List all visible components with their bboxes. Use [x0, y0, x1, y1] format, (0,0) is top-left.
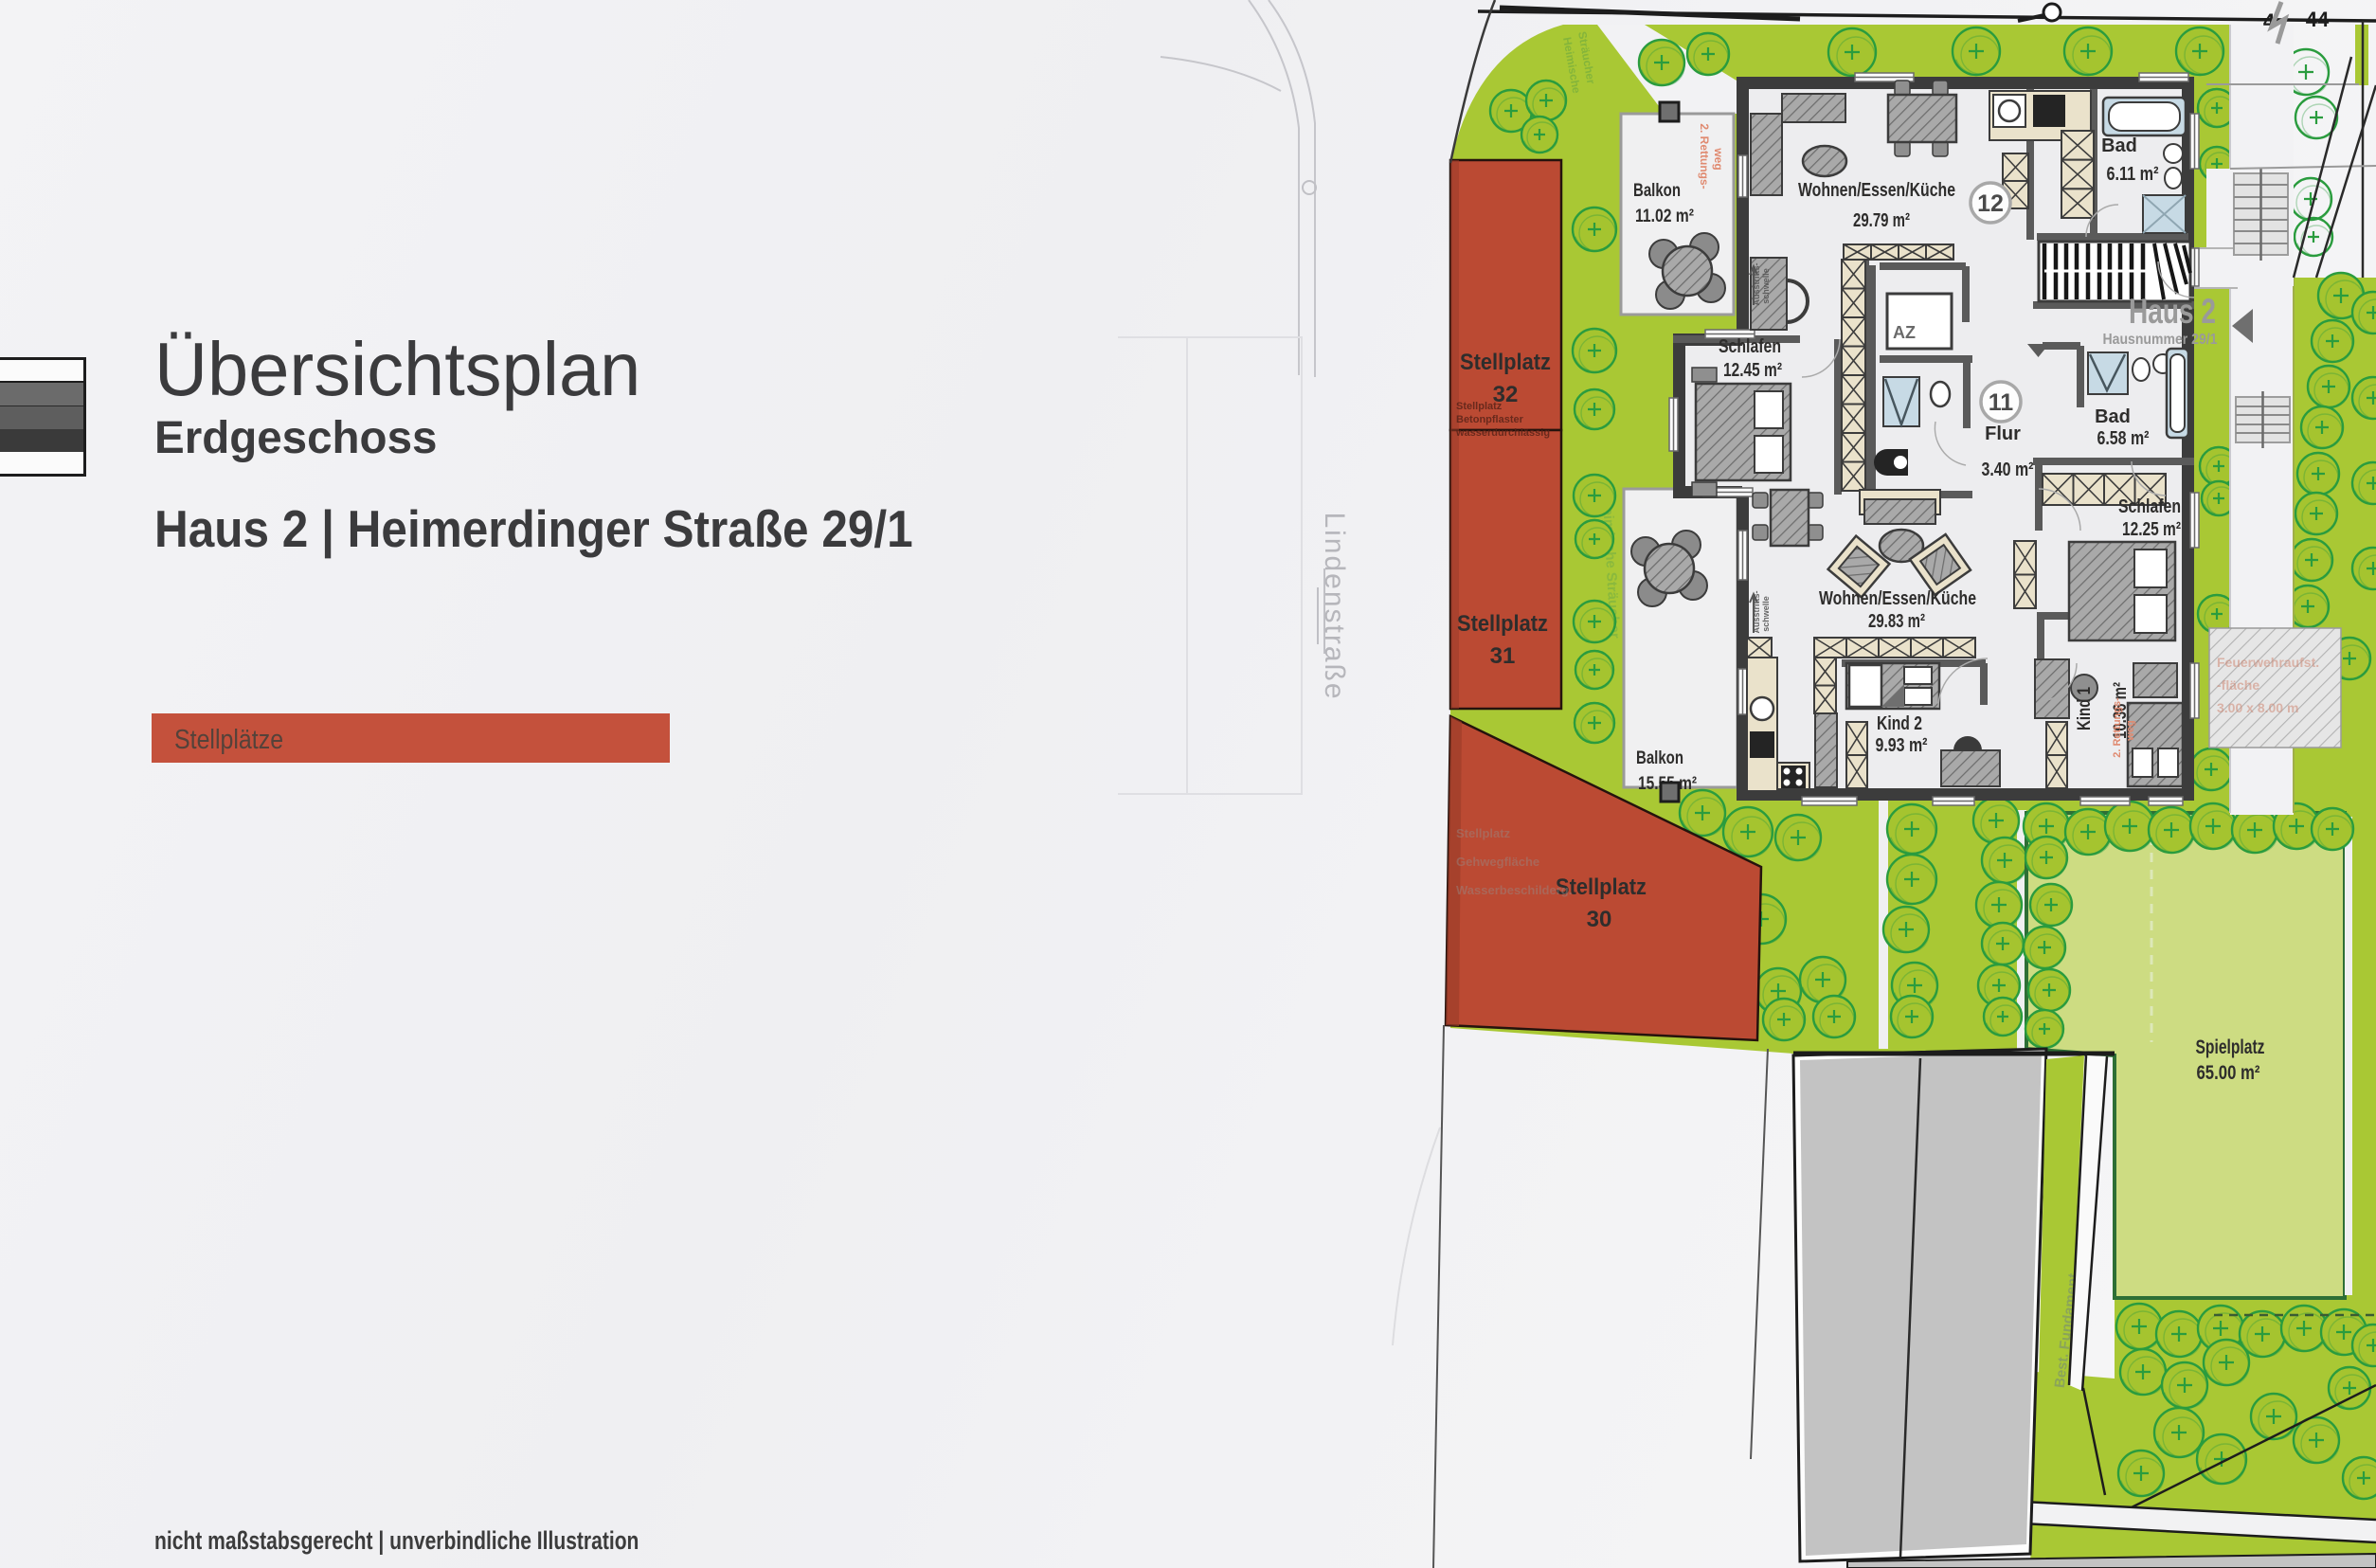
svg-text:schwelle: schwelle [1761, 596, 1771, 632]
svg-text:12: 12 [1977, 190, 2004, 217]
svg-text:Flur: Flur [1985, 424, 2021, 444]
svg-text:3.00 x 8.00 m: 3.00 x 8.00 m [2217, 700, 2298, 715]
svg-text:12.25 m²: 12.25 m² [2122, 519, 2181, 540]
svg-text:schwelle: schwelle [1761, 268, 1771, 304]
svg-text:29.83 m²: 29.83 m² [1868, 611, 1925, 632]
svg-text:Haus 2: Haus 2 [2129, 292, 2216, 331]
svg-text:Schlafen: Schlafen [1719, 336, 1781, 357]
svg-text:Feuerwehraufst.: Feuerwehraufst. [2217, 655, 2319, 670]
svg-text:Stellplatz: Stellplatz [1456, 401, 1503, 412]
svg-text:Stellplatz: Stellplatz [1457, 611, 1548, 637]
svg-text:Hausnummer 29/1: Hausnummer 29/1 [2103, 332, 2218, 348]
svg-text:29.79 m²: 29.79 m² [1853, 210, 1910, 231]
svg-text:Bad: Bad [2101, 135, 2137, 156]
svg-text:2. Rettungs-: 2. Rettungs- [2112, 697, 2123, 758]
svg-text:Bad: Bad [2095, 406, 2131, 427]
svg-text:Gehwegfläche: Gehwegfläche [1456, 855, 1539, 869]
svg-text:11.02 m²: 11.02 m² [1635, 207, 1694, 226]
svg-text:Balkon: Balkon [1636, 748, 1683, 768]
svg-text:6.58 m²: 6.58 m² [2097, 428, 2150, 449]
svg-text:31: 31 [1490, 643, 1516, 669]
svg-text:2. Rettungs-: 2. Rettungs- [1698, 123, 1711, 189]
svg-text:Spielplatz: Spielplatz [2196, 1036, 2265, 1058]
svg-text:Wohnen/Essen/Küche: Wohnen/Essen/Küche [1798, 180, 1955, 201]
svg-text:weg: weg [1712, 147, 1725, 170]
svg-text:3.40 m²: 3.40 m² [1982, 460, 2034, 480]
svg-text:Kind 1: Kind 1 [2075, 687, 2095, 730]
svg-text:44: 44 [2306, 8, 2330, 31]
svg-text:AZ: AZ [1893, 323, 1916, 342]
svg-text:wasserdurchlässig: wasserdurchlässig [1455, 427, 1550, 439]
svg-text:Balkon: Balkon [1633, 181, 1681, 201]
svg-text:Stellplatz: Stellplatz [1456, 826, 1511, 840]
svg-text:Schlafen: Schlafen [2118, 496, 2181, 517]
svg-text:-fläche: -fläche [2217, 677, 2259, 693]
svg-text:Stellplatz: Stellplatz [1460, 350, 1551, 375]
svg-text:65.00 m²: 65.00 m² [2197, 1062, 2260, 1084]
svg-text:30: 30 [1587, 907, 1612, 932]
svg-text:weg: weg [2125, 720, 2136, 741]
svg-text:Wasserbeschilderg.: Wasserbeschilderg. [1456, 883, 1572, 897]
svg-text:11: 11 [1989, 389, 2014, 416]
svg-text:Kind 2: Kind 2 [1877, 713, 1922, 734]
svg-text:Wohnen/Essen/Küche: Wohnen/Essen/Küche [1819, 588, 1976, 609]
svg-text:12.45 m²: 12.45 m² [1723, 360, 1782, 381]
svg-text:Betonpflaster: Betonpflaster [1456, 414, 1524, 425]
svg-text:9.93 m²: 9.93 m² [1876, 735, 1928, 756]
svg-text:Lindenstraße: Lindenstraße [1319, 512, 1350, 700]
svg-text:6.11 m²: 6.11 m² [2107, 164, 2159, 185]
